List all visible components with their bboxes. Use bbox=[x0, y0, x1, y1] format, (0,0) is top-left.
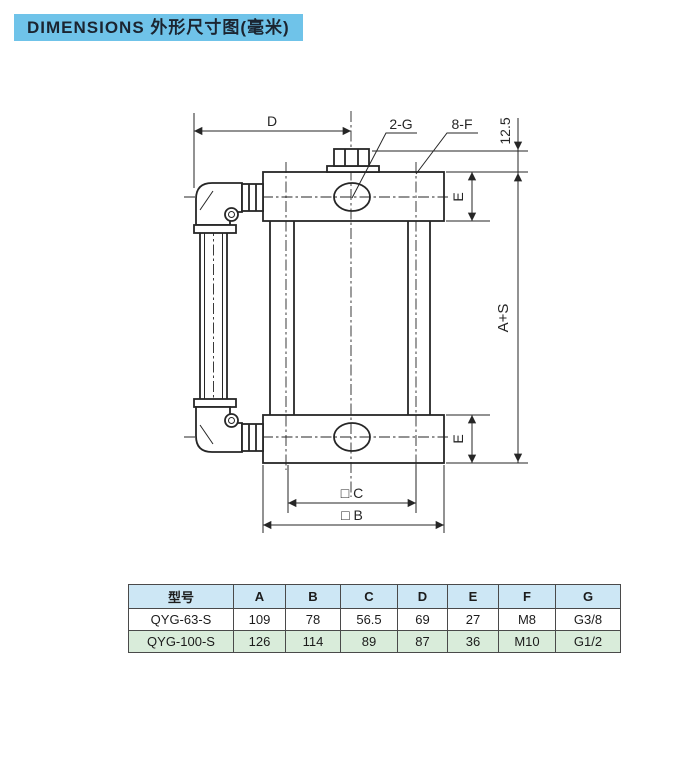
cell-G: G1/2 bbox=[556, 631, 621, 653]
dimension-E-bottom: E bbox=[450, 415, 472, 463]
dimension-square-B: □ B bbox=[263, 507, 444, 525]
bottom-elbow-fitting bbox=[194, 399, 263, 452]
cell-E: 36 bbox=[448, 631, 499, 653]
leader-2-G-label: 2-G bbox=[389, 116, 412, 132]
dimension-A-plus-S-label: A+S bbox=[495, 304, 512, 333]
col-header-D: D bbox=[398, 585, 448, 609]
table-row-qyg-63-s: QYG-63-S 109 78 56.5 69 27 M8 G3/8 bbox=[129, 609, 621, 631]
cell-A: 109 bbox=[234, 609, 286, 631]
cell-C: 56.5 bbox=[341, 609, 398, 631]
cell-D: 69 bbox=[398, 609, 448, 631]
cell-B: 78 bbox=[286, 609, 341, 631]
cell-G: G3/8 bbox=[556, 609, 621, 631]
cell-B: 114 bbox=[286, 631, 341, 653]
cell-F: M10 bbox=[499, 631, 556, 653]
dimension-E-bottom-label: E bbox=[450, 434, 466, 443]
dimension-E-top-label: E bbox=[450, 192, 466, 201]
cell-A: 126 bbox=[234, 631, 286, 653]
col-header-B: B bbox=[286, 585, 341, 609]
leader-8-F-label: 8-F bbox=[452, 116, 473, 132]
dimension-A-plus-S: A+S bbox=[495, 304, 518, 462]
col-header-model: 型号 bbox=[129, 585, 234, 609]
cell-model: QYG-63-S bbox=[129, 609, 234, 631]
top-elbow-fitting bbox=[194, 183, 263, 233]
col-header-F: F bbox=[499, 585, 556, 609]
cell-model: QYG-100-S bbox=[129, 631, 234, 653]
dimension-square-B-label: □ B bbox=[341, 507, 363, 523]
leader-8-F: 8-F bbox=[416, 116, 478, 174]
dimension-D: D bbox=[194, 113, 351, 131]
cell-E: 27 bbox=[448, 609, 499, 631]
technical-drawing: D 2-G 8-F 12.5 E E A+S □ C □ B bbox=[0, 0, 680, 560]
dimension-12-5-label: 12.5 bbox=[497, 117, 513, 144]
dimension-square-C: □ C bbox=[288, 485, 416, 503]
dimensions-table: 型号 A B C D E F G QYG-63-S 109 78 56.5 69… bbox=[128, 584, 621, 653]
top-end-plate bbox=[263, 172, 444, 221]
dimension-square-C-label: □ C bbox=[341, 485, 363, 501]
cell-D: 87 bbox=[398, 631, 448, 653]
dimension-12-5: 12.5 bbox=[497, 117, 518, 186]
level-tube bbox=[200, 233, 227, 399]
extension-lines bbox=[194, 113, 528, 533]
dimension-D-label: D bbox=[267, 113, 277, 129]
col-header-A: A bbox=[234, 585, 286, 609]
cell-F: M8 bbox=[499, 609, 556, 631]
cell-C: 89 bbox=[341, 631, 398, 653]
dimension-E-top: E bbox=[450, 172, 472, 221]
table-header-row: 型号 A B C D E F G bbox=[129, 585, 621, 609]
table-row-qyg-100-s: QYG-100-S 126 114 89 87 36 M10 G1/2 bbox=[129, 631, 621, 653]
col-header-C: C bbox=[341, 585, 398, 609]
tie-rods bbox=[270, 221, 430, 415]
col-header-G: G bbox=[556, 585, 621, 609]
col-header-E: E bbox=[448, 585, 499, 609]
